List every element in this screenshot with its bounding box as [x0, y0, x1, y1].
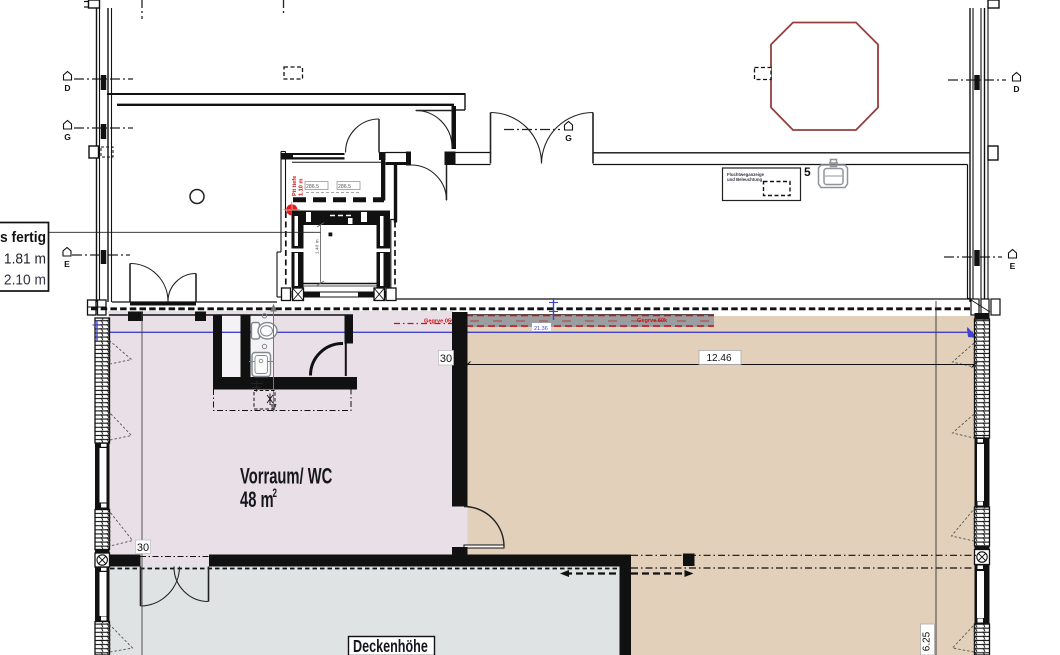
svg-text:G: G: [565, 133, 572, 143]
svg-text:21.36: 21.36: [534, 326, 548, 332]
svg-text:Gegrve 05y: Gegrve 05y: [424, 319, 455, 325]
svg-text:286.5: 286.5: [306, 184, 319, 190]
svg-text:12.46: 12.46: [706, 353, 731, 364]
svg-text:Pit tiefe: Pit tiefe: [292, 176, 298, 196]
svg-text:Deckenhöhe: Deckenhöhe: [353, 637, 428, 655]
svg-text:Gegrve 60k: Gegrve 60k: [637, 318, 668, 324]
svg-text:D: D: [1013, 84, 1019, 94]
svg-text:30: 30: [440, 353, 452, 365]
svg-text:Vorraum/ WC: Vorraum/ WC: [240, 464, 332, 489]
svg-text:30: 30: [137, 542, 149, 554]
svg-text:D: D: [64, 83, 70, 93]
svg-text:48 m: 48 m: [240, 487, 274, 512]
svg-text:und Beleuchtung: und Beleuchtung: [727, 177, 762, 182]
svg-text:1.10 m: 1.10 m: [299, 179, 305, 196]
svg-text:1.40 m: 1.40 m: [315, 239, 321, 254]
svg-text:E: E: [1010, 261, 1016, 271]
svg-text:E: E: [64, 259, 70, 269]
svg-text:G: G: [64, 132, 71, 142]
svg-text:5: 5: [804, 165, 811, 179]
svg-text:286.5: 286.5: [338, 184, 351, 190]
svg-text:2: 2: [273, 488, 278, 501]
svg-text:V 1.81 m: V 1.81 m: [0, 250, 46, 266]
svg-text:ss fertig: ss fertig: [0, 230, 46, 247]
svg-text:2.10 m: 2.10 m: [4, 271, 46, 287]
svg-text:6.25: 6.25: [922, 631, 933, 651]
